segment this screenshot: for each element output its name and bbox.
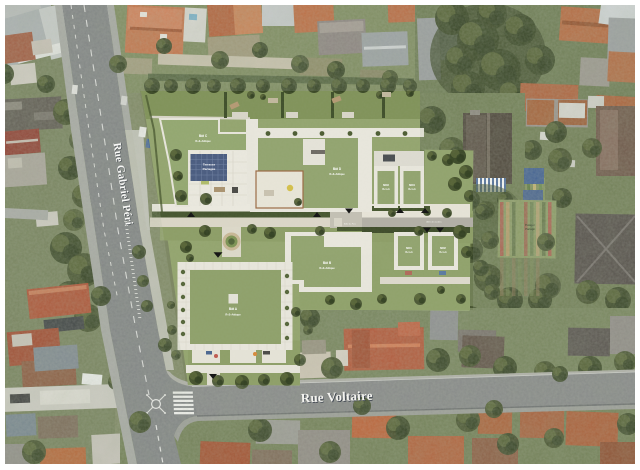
svg-text:Rue Voltaire: Rue Voltaire bbox=[301, 388, 373, 406]
